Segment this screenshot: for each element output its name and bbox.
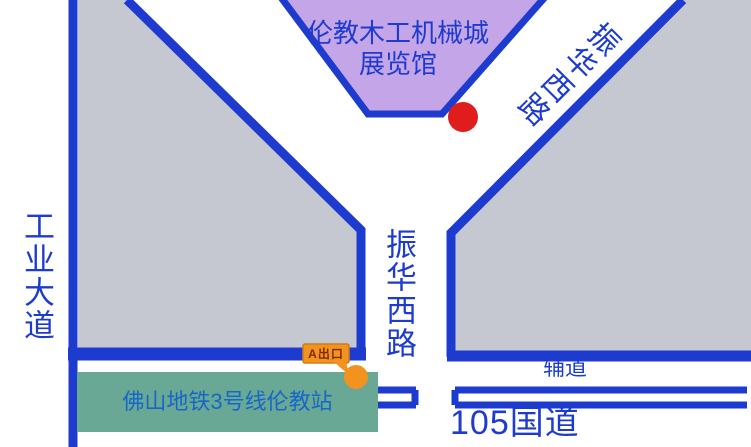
building-label: 伦教木工机械城 展览馆: [285, 18, 511, 80]
metro-station-label: 佛山地铁3号线伦教站: [77, 372, 378, 432]
building-label-line2: 展览馆: [285, 49, 511, 80]
frontage-road-label: 辅道: [543, 357, 587, 379]
road-map: 伦教木工机械城 展览馆 振华西路 振华西路 工业大道 辅道 105国道 佛山地铁…: [0, 0, 751, 447]
building-label-line1: 伦教木工机械城: [285, 18, 511, 49]
zhenhua-west-road-stem-label: 振华西路: [383, 228, 414, 368]
national-highway-105-label: 105国道: [450, 406, 580, 440]
industrial-avenue-label: 工业大道: [21, 210, 52, 352]
exit-a-label: A出口: [303, 344, 349, 363]
destination-marker-dot: [448, 102, 478, 132]
